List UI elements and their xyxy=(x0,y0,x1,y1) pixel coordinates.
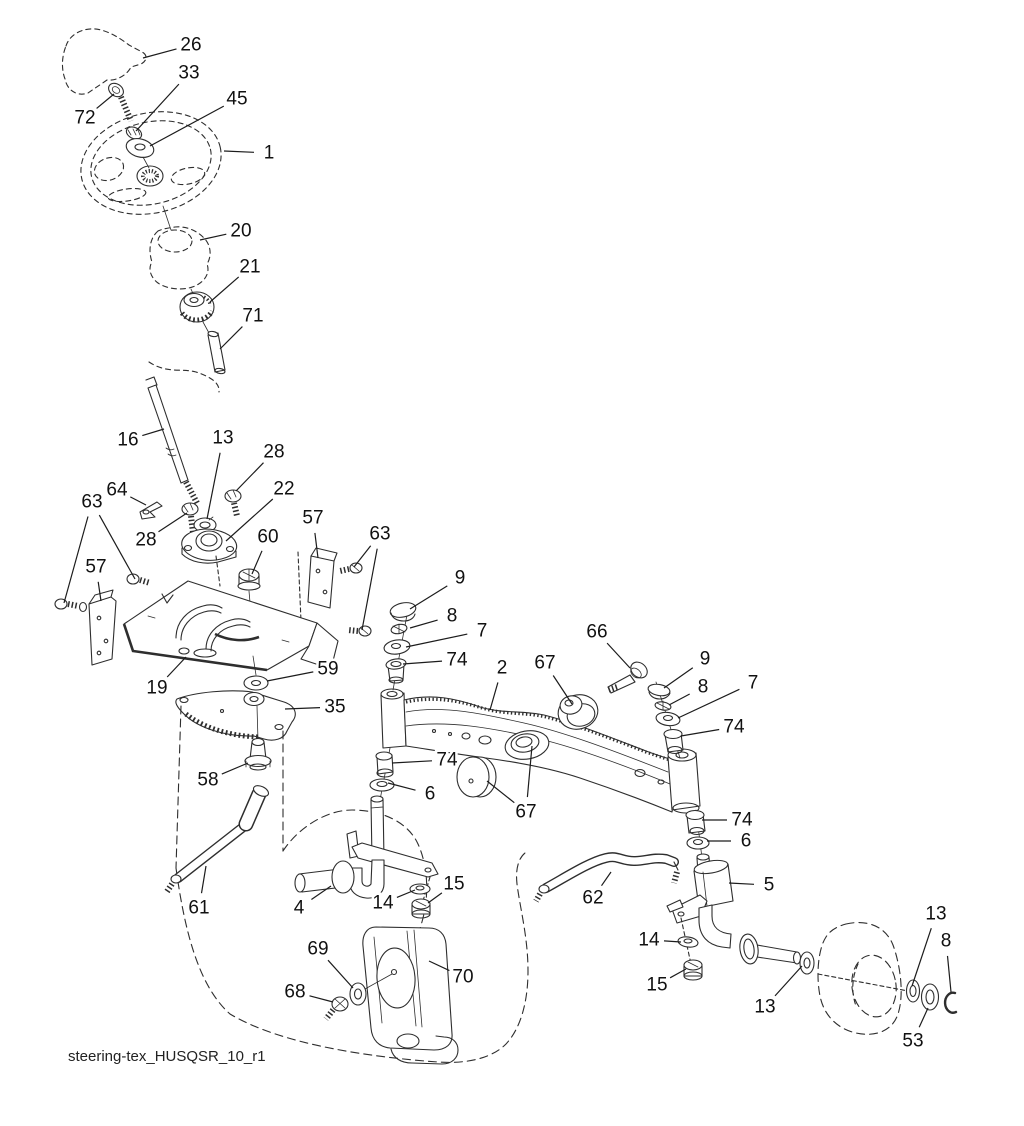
leader-line-8 xyxy=(669,694,690,705)
leader-line-19 xyxy=(167,657,186,677)
diagram-canvas: 2633457212021711613286422286057636357987… xyxy=(0,0,1024,1126)
callout-45: 45 xyxy=(226,89,247,110)
support-bracket-right xyxy=(308,548,337,608)
steering-plate xyxy=(124,581,338,670)
bracket-bolt xyxy=(326,997,348,1019)
leader-line-74 xyxy=(681,730,719,737)
callout-2: 2 xyxy=(497,658,508,679)
callout-62: 62 xyxy=(582,888,603,909)
flange-nut xyxy=(238,569,260,590)
leader-line-74 xyxy=(403,661,442,664)
callout-9: 9 xyxy=(455,568,466,589)
callout-64: 64 xyxy=(106,480,128,501)
leader-line-72 xyxy=(97,94,114,108)
shaft-sleeve xyxy=(208,331,226,375)
axis-line xyxy=(163,206,171,230)
callout-16: 16 xyxy=(117,430,138,451)
callout-63: 63 xyxy=(369,524,390,545)
leader-line-68 xyxy=(310,996,334,1002)
parts-diagram: 2633457212021711613286422286057636357987… xyxy=(0,0,1024,1126)
callout-6: 6 xyxy=(425,784,436,805)
leader-line-20 xyxy=(200,234,226,240)
leader-line-16 xyxy=(142,429,164,436)
steering-boot xyxy=(150,227,210,289)
leader-line-59 xyxy=(267,672,313,681)
spindle-stack-right xyxy=(647,682,683,758)
dash-cover xyxy=(62,29,146,94)
leader-line-13 xyxy=(912,928,931,986)
lock-nut-left xyxy=(412,899,430,918)
callout-4: 4 xyxy=(294,898,305,919)
callout-20: 20 xyxy=(230,221,251,242)
leader-line-53 xyxy=(919,1008,928,1027)
steering-hub-gear xyxy=(180,292,214,322)
keps-washer-left xyxy=(410,884,430,894)
dashed-connector xyxy=(149,362,219,392)
callout-26: 26 xyxy=(180,35,201,56)
leader-line-5 xyxy=(729,883,754,884)
callout-66: 66 xyxy=(586,622,607,643)
leader-line-7 xyxy=(678,689,739,718)
leader-line-60 xyxy=(252,551,262,574)
callout-57: 57 xyxy=(302,508,323,529)
leader-line-66 xyxy=(607,643,630,668)
leader-line-15 xyxy=(428,893,442,903)
callout-7: 7 xyxy=(477,621,488,642)
callout-67: 67 xyxy=(515,802,536,823)
callout-13: 13 xyxy=(925,904,946,925)
callout-28: 28 xyxy=(263,442,284,463)
leader-line-57 xyxy=(98,582,101,601)
leader-line-9 xyxy=(664,668,693,688)
leader-line-7 xyxy=(406,634,467,647)
leader-line-13 xyxy=(207,453,220,519)
leader-line-21 xyxy=(210,277,239,302)
callout-35: 35 xyxy=(324,697,345,718)
callout-58: 58 xyxy=(197,770,218,791)
leader-line-26 xyxy=(143,49,177,58)
callout-60: 60 xyxy=(257,527,278,548)
bushing-washer-right-lower xyxy=(686,810,709,858)
leader-line-62 xyxy=(602,872,612,886)
front-wheel xyxy=(818,923,908,1035)
axis-line xyxy=(203,322,209,333)
callout-74: 74 xyxy=(436,750,458,771)
leader-line-69 xyxy=(328,960,353,988)
leader-line-33 xyxy=(136,84,179,131)
pivot-bolt xyxy=(608,659,650,693)
callout-15: 15 xyxy=(646,975,667,996)
leader-line-2 xyxy=(490,682,498,710)
leader-line-13 xyxy=(775,966,802,996)
callout-63: 63 xyxy=(81,492,102,513)
callout-6: 6 xyxy=(741,831,752,852)
tie-rod xyxy=(166,784,270,893)
callout-67: 67 xyxy=(534,653,555,674)
leader-line-28 xyxy=(159,513,188,532)
leader-line-57 xyxy=(315,533,318,558)
callout-14: 14 xyxy=(372,893,394,914)
leader-line-61 xyxy=(202,866,207,893)
spindle-right xyxy=(667,854,801,965)
callout-7: 7 xyxy=(748,673,759,694)
sector-gear-plate xyxy=(176,691,295,740)
hex-bolt-upper xyxy=(225,490,241,516)
diagram-code: steering-tex_HUSQSR_10_r1 xyxy=(68,1048,266,1065)
callout-22: 22 xyxy=(273,479,294,500)
support-bracket-left xyxy=(89,590,116,665)
callout-8: 8 xyxy=(941,931,952,952)
e-clip xyxy=(945,993,956,1013)
leader-line-63 xyxy=(362,549,377,630)
callout-74: 74 xyxy=(731,810,753,831)
callout-57: 57 xyxy=(85,557,106,578)
steering-bolt xyxy=(106,80,131,121)
screw-63-left-b xyxy=(127,574,150,584)
leader-line-64 xyxy=(130,497,146,505)
leader-line-74 xyxy=(392,761,432,763)
callout-69: 69 xyxy=(307,939,328,960)
callout-21: 21 xyxy=(239,257,260,278)
lock-nut-right xyxy=(684,960,702,980)
callout-8: 8 xyxy=(447,606,458,627)
screw-63-right-b xyxy=(348,626,371,636)
callout-8: 8 xyxy=(698,677,709,698)
callout-1: 1 xyxy=(264,143,275,164)
callout-72: 72 xyxy=(74,108,95,129)
keyway-clip xyxy=(140,502,162,519)
leader-line-1 xyxy=(224,151,254,152)
callout-19: 19 xyxy=(146,678,167,699)
thrust-washer-53 xyxy=(922,984,939,1010)
callout-13: 13 xyxy=(212,428,233,449)
leader-line-63 xyxy=(64,517,88,604)
callout-59: 59 xyxy=(317,659,338,680)
steering-washer-cap xyxy=(124,136,156,161)
bushing-washer-left-lower xyxy=(370,748,394,800)
axle-hub-lower xyxy=(457,757,496,797)
flange-bearing xyxy=(182,529,237,563)
axle-washer-13-inner xyxy=(800,952,814,974)
steering-shaft xyxy=(146,377,197,503)
callout-13: 13 xyxy=(754,997,775,1018)
screw-63-left-a xyxy=(55,599,87,612)
callout-5: 5 xyxy=(764,875,775,896)
screw-63-right-a xyxy=(340,563,362,573)
drag-link xyxy=(536,857,678,901)
callout-61: 61 xyxy=(188,898,209,919)
callout-53: 53 xyxy=(902,1031,923,1052)
callout-68: 68 xyxy=(284,982,305,1003)
leader-line-8 xyxy=(410,620,438,628)
leader-line-71 xyxy=(220,327,242,349)
leader-line-14 xyxy=(397,890,415,897)
callout-74: 74 xyxy=(446,650,468,671)
leader-line-63 xyxy=(354,546,371,567)
callout-15: 15 xyxy=(443,874,464,895)
leader-line-58 xyxy=(222,763,248,774)
callout-9: 9 xyxy=(700,649,711,670)
callout-70: 70 xyxy=(452,967,473,988)
callout-74: 74 xyxy=(723,717,745,738)
leader-line-28 xyxy=(236,463,264,491)
leader-line-8 xyxy=(948,956,952,992)
callout-14: 14 xyxy=(638,930,660,951)
callout-28: 28 xyxy=(135,530,156,551)
leader-line-9 xyxy=(410,586,447,609)
callout-71: 71 xyxy=(242,306,263,327)
steering-support-bracket xyxy=(363,927,458,1064)
dashed-axis xyxy=(216,556,220,586)
callout-33: 33 xyxy=(178,63,199,84)
